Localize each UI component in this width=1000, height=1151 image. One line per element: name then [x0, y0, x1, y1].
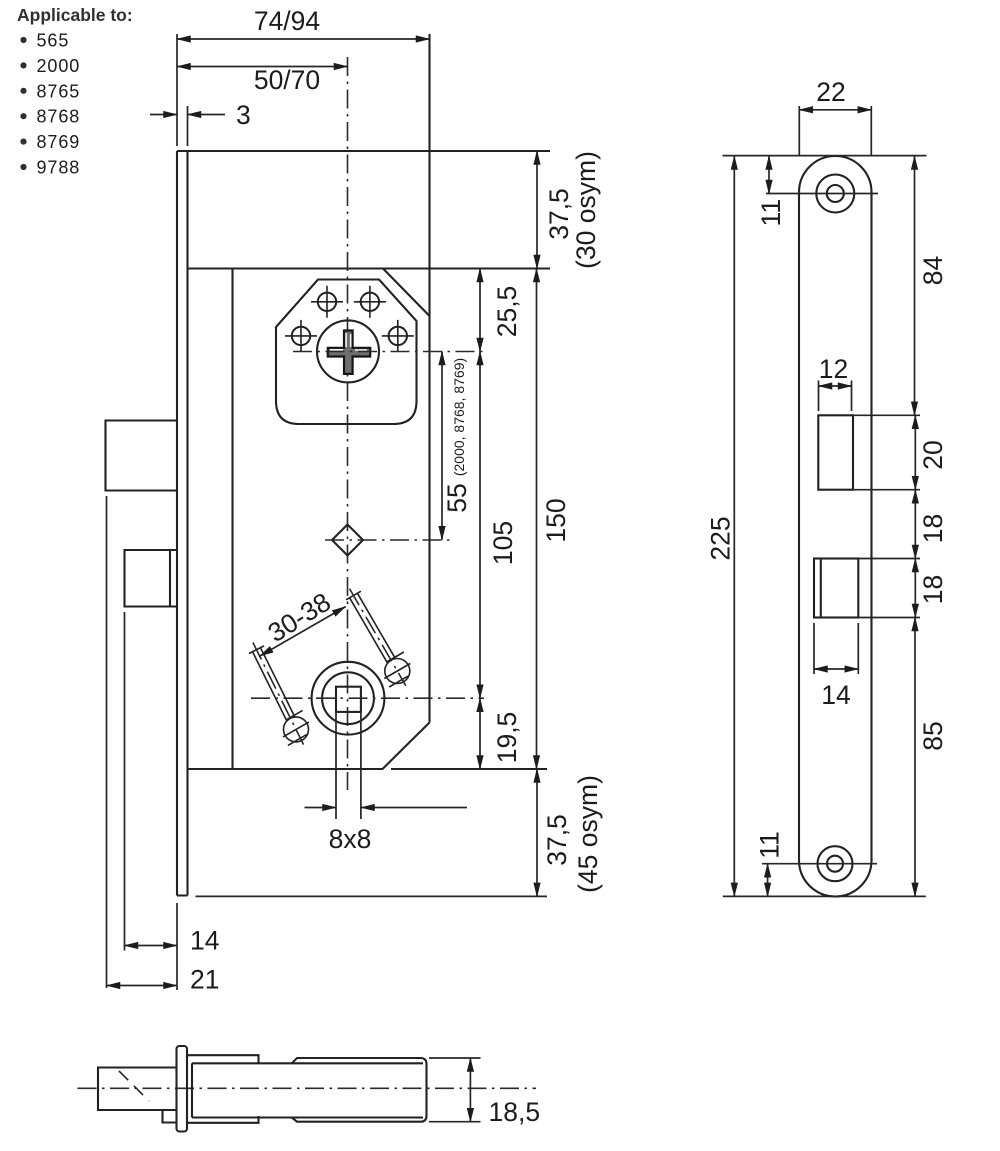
svg-text:22: 22 — [816, 77, 845, 107]
svg-text:8765: 8765 — [37, 81, 81, 101]
svg-text:55: 55 — [442, 483, 472, 512]
svg-text:30-38: 30-38 — [263, 587, 336, 648]
svg-text:8x8: 8x8 — [329, 824, 372, 854]
svg-text:14: 14 — [190, 926, 219, 956]
svg-text:21: 21 — [190, 965, 219, 995]
svg-text:565: 565 — [37, 31, 70, 51]
svg-text:12: 12 — [819, 354, 848, 384]
svg-text:37,5: 37,5 — [544, 188, 574, 240]
svg-text:18: 18 — [918, 575, 948, 604]
svg-text:150: 150 — [541, 498, 571, 542]
svg-text:105: 105 — [488, 521, 518, 565]
svg-text:(45 osym): (45 osym) — [573, 775, 603, 893]
svg-text:85: 85 — [918, 721, 948, 750]
svg-text:14: 14 — [821, 680, 850, 710]
svg-text:11: 11 — [756, 199, 786, 227]
svg-text:18: 18 — [918, 514, 948, 543]
svg-text:(2000, 8768, 8769): (2000, 8768, 8769) — [451, 358, 467, 476]
svg-text:84: 84 — [918, 256, 948, 285]
svg-text:9788: 9788 — [37, 158, 81, 178]
svg-text:8768: 8768 — [37, 107, 81, 127]
svg-text:3: 3 — [236, 100, 251, 130]
svg-text:37,5: 37,5 — [542, 814, 572, 866]
svg-text:2000: 2000 — [37, 56, 81, 76]
svg-text:(30 osym): (30 osym) — [571, 151, 601, 269]
svg-text:19,5: 19,5 — [492, 712, 522, 764]
svg-text:25,5: 25,5 — [492, 286, 522, 338]
svg-text:18,5: 18,5 — [489, 1097, 541, 1127]
svg-text:8769: 8769 — [37, 132, 81, 152]
svg-text:11: 11 — [755, 831, 785, 859]
svg-text:74/94: 74/94 — [254, 6, 320, 36]
svg-text:20: 20 — [918, 440, 948, 469]
svg-text:225: 225 — [706, 516, 736, 560]
svg-text:Applicable to:: Applicable to: — [17, 5, 133, 25]
svg-text:50/70: 50/70 — [254, 65, 320, 95]
